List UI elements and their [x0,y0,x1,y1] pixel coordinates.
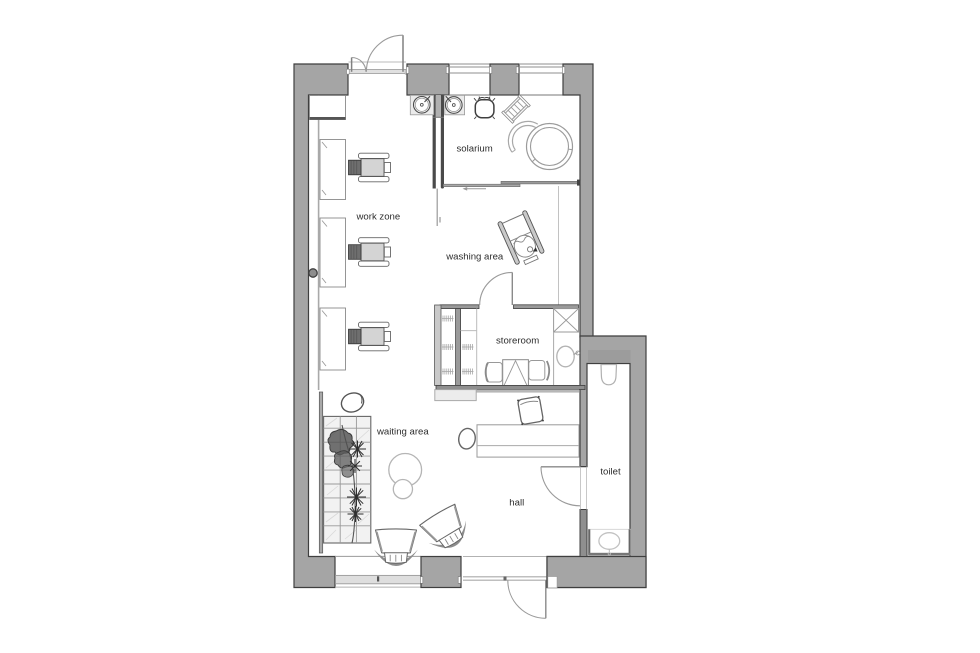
svg-text:solarium: solarium [457,144,493,155]
svg-text:storeroom: storeroom [496,336,539,347]
svg-text:work zone: work zone [356,212,401,223]
svg-text:toilet: toilet [600,467,621,478]
svg-text:waiting area: waiting area [376,427,429,438]
svg-text:hall: hall [509,497,524,508]
svg-text:washing area: washing area [445,251,504,262]
